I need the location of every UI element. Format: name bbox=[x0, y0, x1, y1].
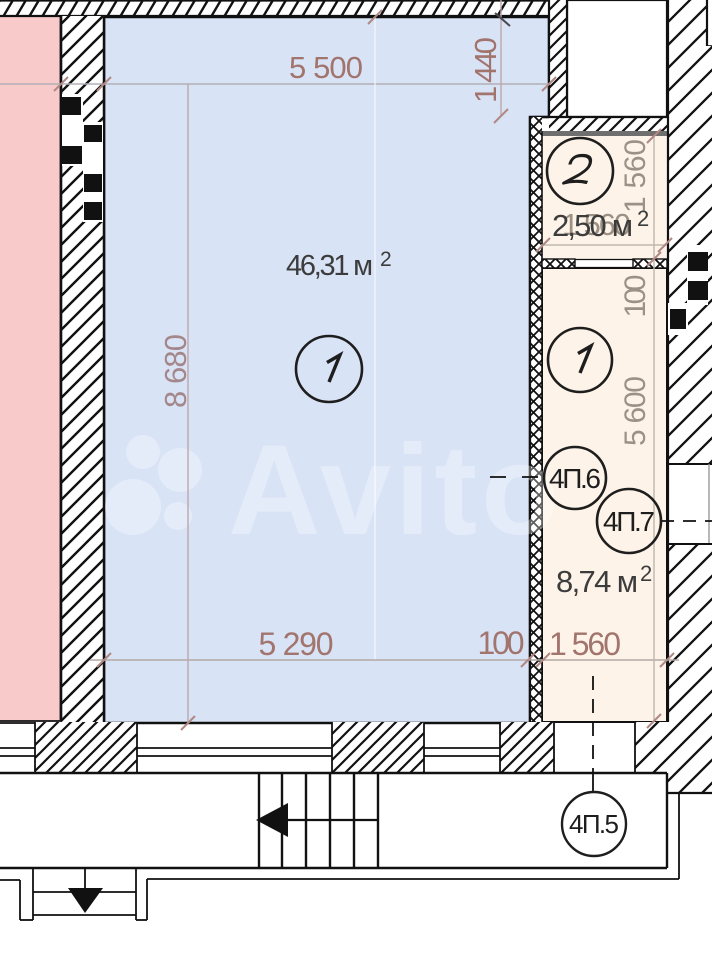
svg-text:2: 2 bbox=[640, 561, 652, 586]
svg-text:8 680: 8 680 bbox=[158, 334, 193, 408]
svg-text:Avito: Avito bbox=[228, 419, 563, 562]
svg-text:8,74 м: 8,74 м bbox=[556, 564, 638, 599]
svg-text:2,50 м: 2,50 м bbox=[552, 208, 633, 243]
svg-text:1 560: 1 560 bbox=[619, 139, 652, 213]
svg-text:46,31 м: 46,31 м bbox=[286, 250, 373, 282]
svg-text:4П.6: 4П.6 bbox=[549, 463, 601, 494]
svg-text:5 500: 5 500 bbox=[289, 50, 363, 85]
svg-text:4П.7: 4П.7 bbox=[603, 506, 655, 537]
svg-text:100: 100 bbox=[478, 625, 525, 661]
svg-text:5 290: 5 290 bbox=[259, 626, 334, 662]
svg-text:4П.5: 4П.5 bbox=[569, 809, 619, 839]
svg-text:2: 2 bbox=[637, 206, 649, 231]
svg-text:100: 100 bbox=[619, 275, 652, 318]
svg-text:5 600: 5 600 bbox=[619, 376, 652, 446]
svg-text:1 440: 1 440 bbox=[468, 37, 503, 103]
svg-text:1 560: 1 560 bbox=[549, 626, 621, 662]
svg-text:2: 2 bbox=[380, 248, 392, 271]
